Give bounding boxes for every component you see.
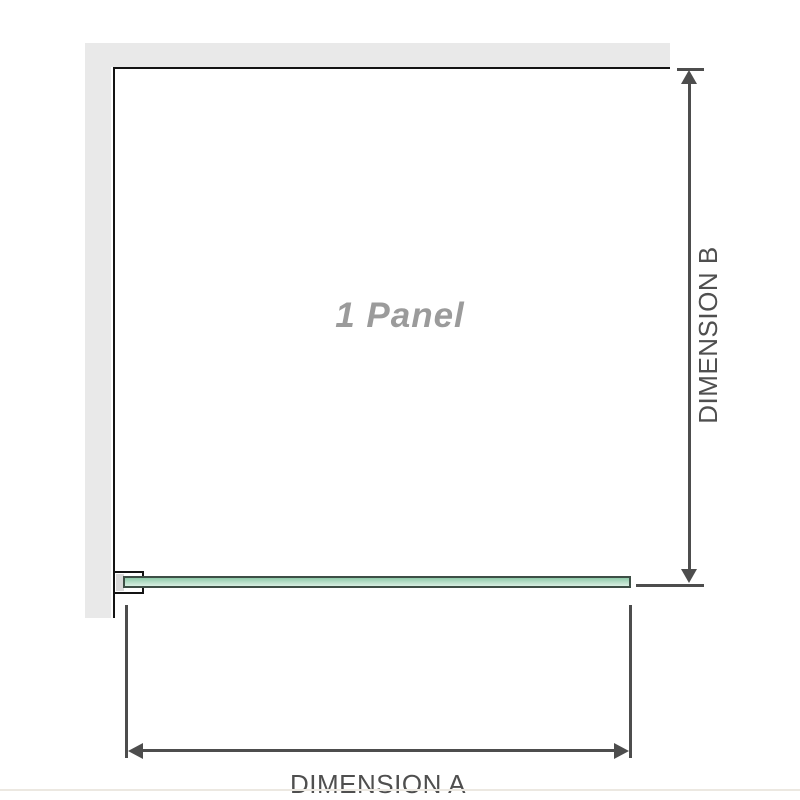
arrow-down-icon (681, 569, 697, 583)
panel-count-label: 1 Panel (290, 298, 510, 338)
dimension-b-label: DIMENSION B (695, 235, 721, 435)
arrow-left-icon (128, 743, 143, 759)
arrow-right-icon (614, 743, 629, 759)
dimension-a-extension-left (125, 605, 128, 758)
dimension-a-label: DIMENSION A (253, 770, 503, 798)
dimension-b-line (688, 80, 691, 572)
arrow-up-icon (681, 70, 697, 84)
wall-segment-left (85, 43, 111, 618)
dimension-b-tick-top (677, 68, 704, 71)
wall-segment-top (85, 43, 670, 67)
diagram-canvas: 1 Panel DIMENSION B DIMENSION A (0, 0, 800, 800)
image-bottom-edge (0, 789, 800, 791)
dimension-a-line (136, 749, 622, 752)
glass-panel-bar (123, 576, 631, 588)
dimension-a-extension-right (629, 605, 632, 758)
panel-outline (113, 67, 670, 618)
